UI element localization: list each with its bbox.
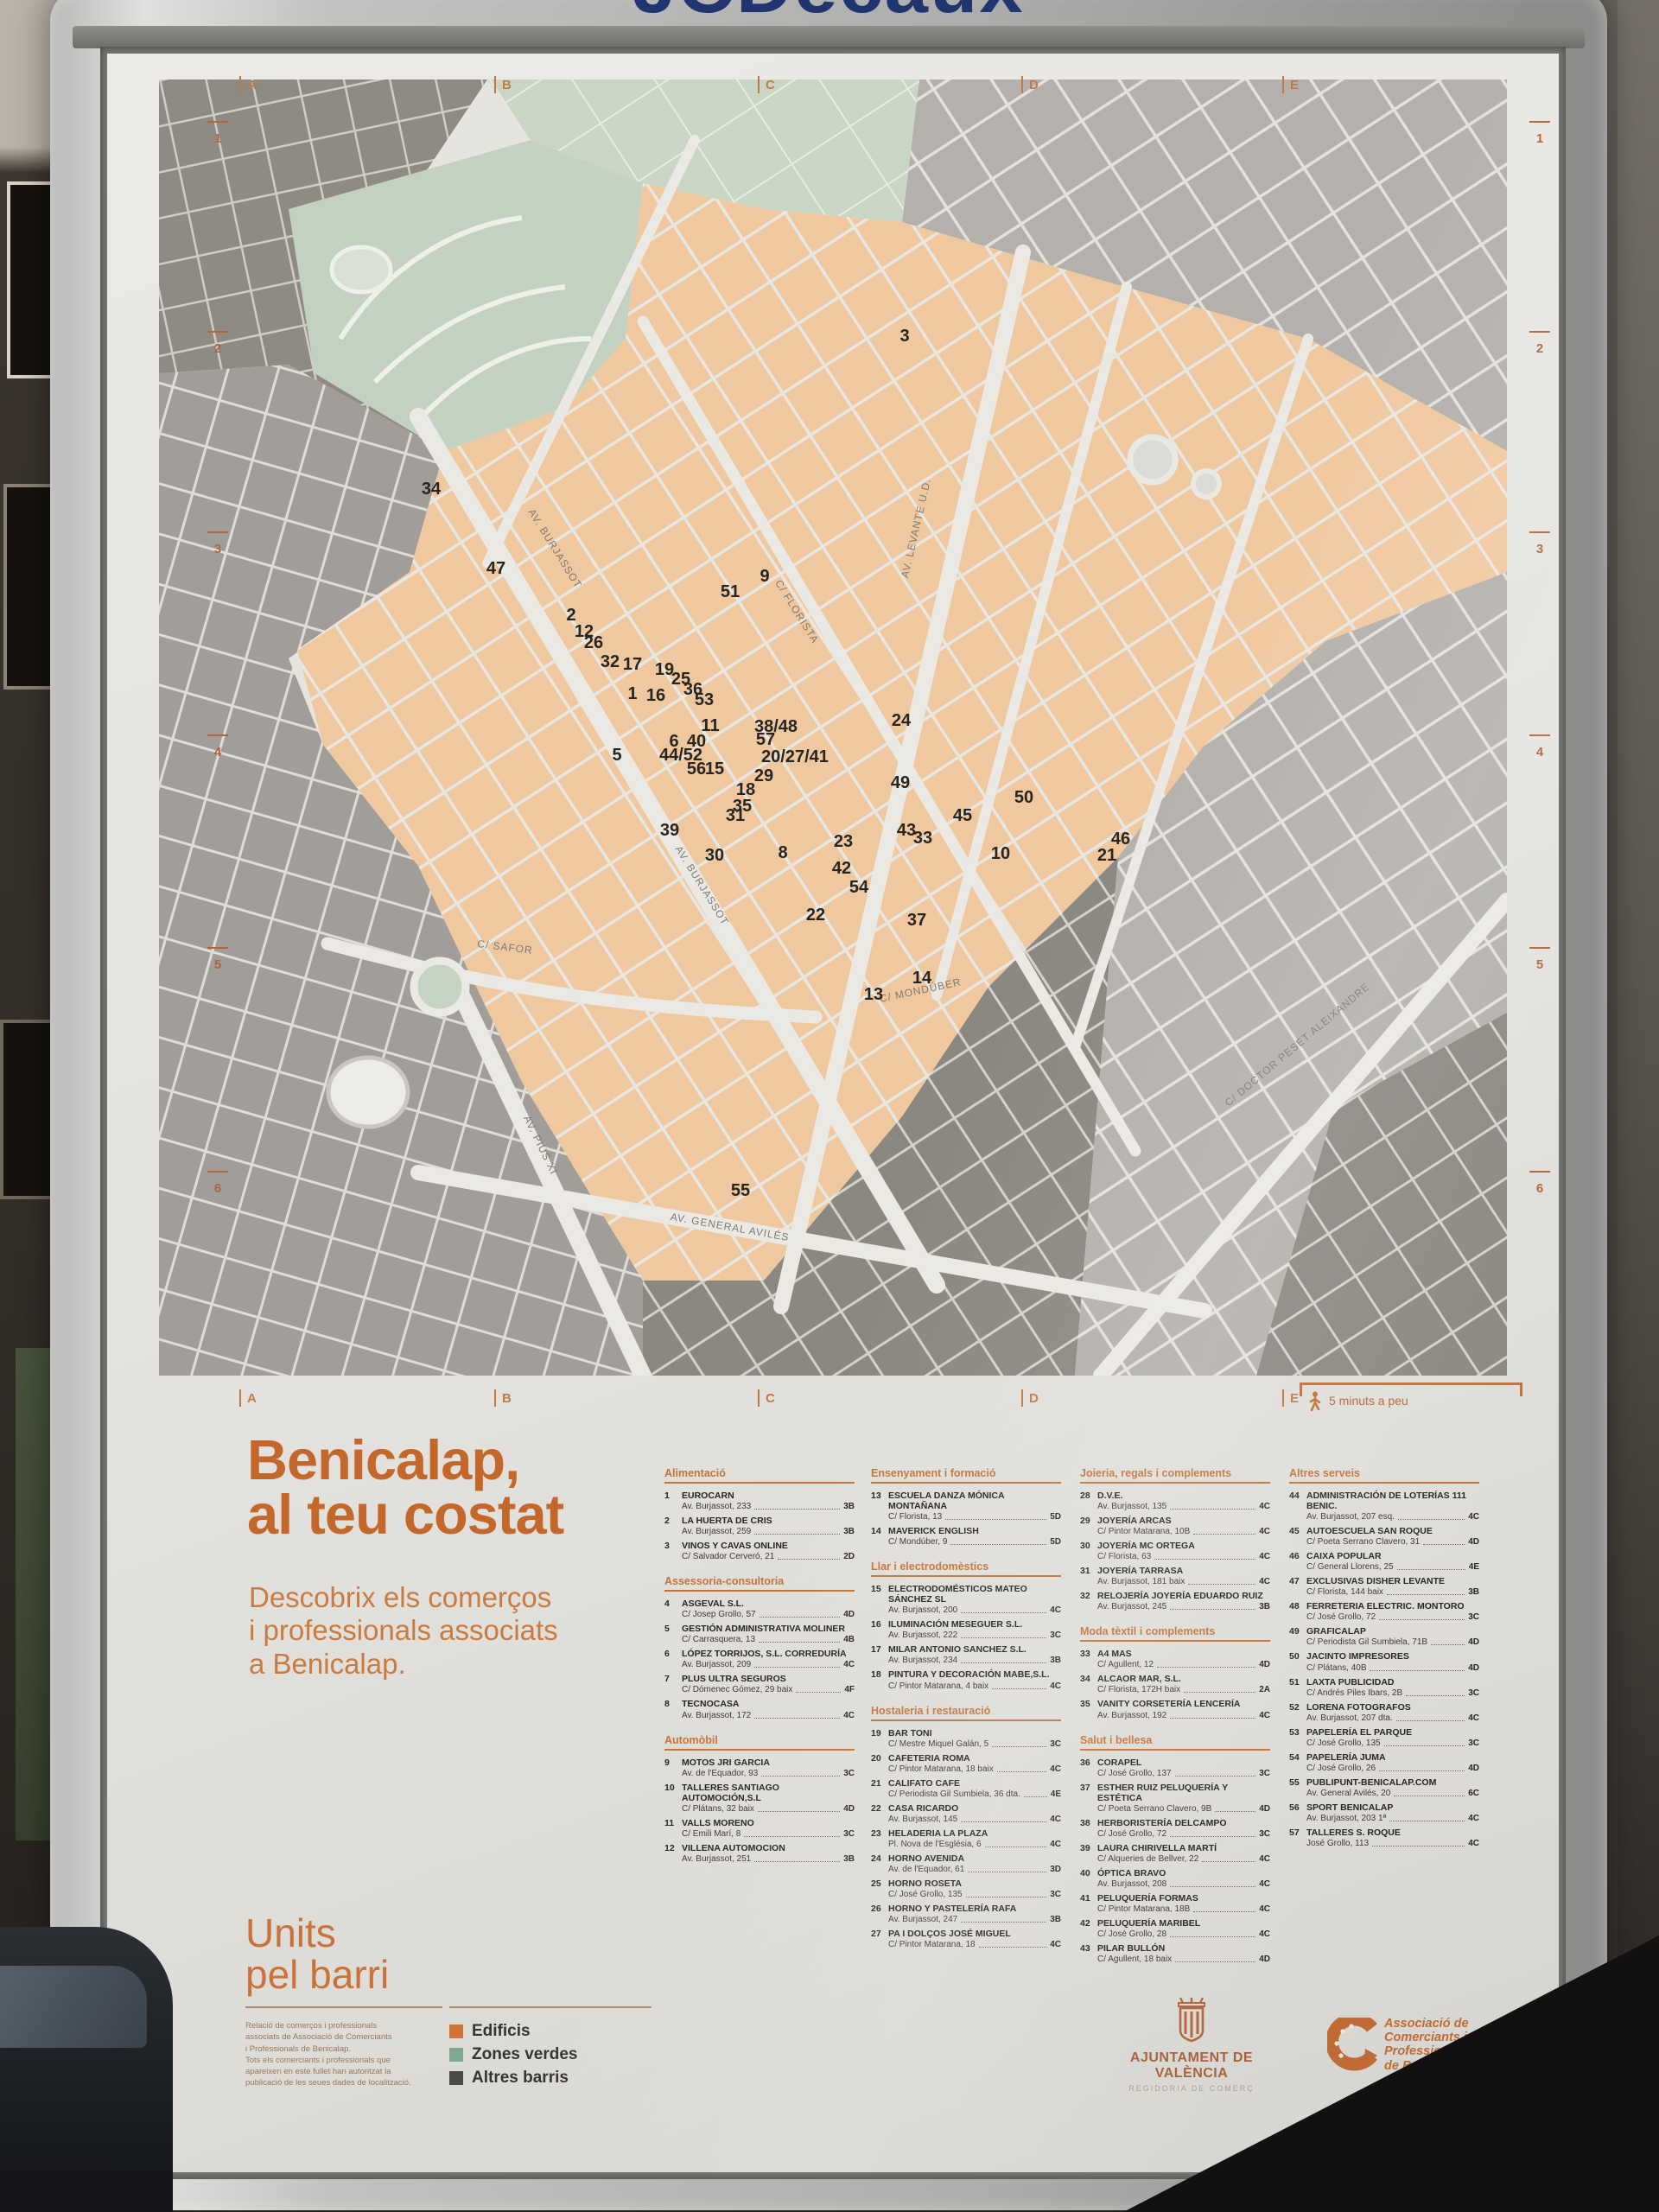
dotted-leader bbox=[961, 1637, 1046, 1638]
directory-item: 8TECNOCASAAv. Burjassot, 1724C bbox=[664, 1699, 855, 1720]
item-number: 11 bbox=[664, 1818, 682, 1840]
item-number: 55 bbox=[1289, 1777, 1306, 1799]
item-address: C/ José Grollo, 135 bbox=[888, 1889, 963, 1900]
item-address: Av. Burjassot, 135 bbox=[1097, 1501, 1166, 1512]
map-marker: 13 bbox=[864, 985, 883, 1004]
item-name: EUROCARN bbox=[682, 1491, 855, 1501]
dotted-leader bbox=[759, 1642, 840, 1643]
directory-item: 36CORAPELC/ José Grollo, 1373C bbox=[1080, 1758, 1270, 1779]
item-name: EXCLUSIVAS DISHER LEVANTE bbox=[1306, 1576, 1479, 1586]
item-grid-ref: 4C bbox=[1468, 1713, 1479, 1724]
item-grid-ref: 4B bbox=[843, 1634, 855, 1645]
directory-section: Moda tèxtil i complements33A4 MASC/ Agul… bbox=[1080, 1625, 1270, 1720]
directory-item: 45AUTOESCUELA SAN ROQUEC/ Poeta Serrano … bbox=[1289, 1526, 1479, 1548]
item-number: 16 bbox=[871, 1619, 888, 1641]
frame-top-bar bbox=[73, 26, 1585, 48]
dotted-leader bbox=[1170, 1509, 1255, 1510]
item-number: 40 bbox=[1080, 1868, 1097, 1890]
item-grid-ref: 3B bbox=[843, 1853, 855, 1865]
directory-item: 42PELUQUERÍA MARIBELC/ José Grollo, 284C bbox=[1080, 1918, 1270, 1940]
dotted-leader bbox=[961, 1612, 1046, 1613]
item-grid-ref: 5D bbox=[1050, 1536, 1061, 1548]
dotted-leader bbox=[1379, 1619, 1465, 1620]
grid-number: 4 bbox=[209, 745, 226, 760]
item-name: JOYERÍA TARRASA bbox=[1097, 1566, 1270, 1576]
map-marker: 30 bbox=[705, 846, 724, 865]
item-grid-ref: 4D bbox=[1468, 1662, 1479, 1674]
item-address: C/ Pintor Matarana, 4 baix bbox=[888, 1681, 988, 1692]
dotted-leader bbox=[778, 1559, 840, 1560]
item-grid-ref: 4C bbox=[1259, 1501, 1270, 1512]
item-grid-ref: 3C bbox=[1050, 1738, 1061, 1750]
item-grid-ref: 3C bbox=[1468, 1738, 1479, 1749]
directory-item: 22CASA RICARDOAv. Burjassot, 1454C bbox=[871, 1803, 1061, 1825]
dotted-leader bbox=[1175, 1776, 1256, 1777]
directory-item: 9MOTOS JRI GARCIAAv. de l'Equador, 933C bbox=[664, 1758, 855, 1779]
item-grid-ref: 4C bbox=[1050, 1605, 1061, 1616]
item-number: 22 bbox=[871, 1803, 888, 1825]
map-marker: 15 bbox=[705, 760, 724, 779]
item-name: PELUQUERÍA FORMAS bbox=[1097, 1893, 1270, 1904]
legend-row: Altres barris bbox=[449, 2069, 578, 2088]
ajuntament-valencia-logo: AJUNTAMENT DE VALÈNCIA REGIDORIA DE COME… bbox=[1101, 1998, 1282, 2093]
map-marker: 42 bbox=[832, 859, 851, 878]
grid-number: 3 bbox=[209, 542, 226, 556]
directory-item: 19BAR TONIC/ Mestre Miquel Galán, 53C bbox=[871, 1728, 1061, 1750]
dotted-leader bbox=[1406, 1695, 1465, 1696]
legend-row: Zones verdes bbox=[449, 2045, 578, 2064]
walking-scale: 5 minuts a peu bbox=[1300, 1382, 1522, 1427]
item-number: 42 bbox=[1080, 1918, 1097, 1940]
item-number: 46 bbox=[1289, 1551, 1306, 1573]
item-address: C/ Salvador Cerveró, 21 bbox=[682, 1551, 774, 1562]
dotted-leader bbox=[760, 1617, 841, 1618]
item-address: Av. Burjassot, 207 esq. bbox=[1306, 1511, 1395, 1522]
map-marker: 3 bbox=[899, 327, 909, 346]
map-marker: 56 bbox=[687, 760, 706, 779]
item-grid-ref: 3B bbox=[1259, 1601, 1270, 1612]
directory-item: 50JACINTO IMPRESORESC/ Plátans, 40B4D bbox=[1289, 1651, 1479, 1673]
grid-letter: C bbox=[766, 78, 775, 92]
poster-title: Benicalap,al teu costat bbox=[247, 1433, 645, 1541]
item-grid-ref: 4C bbox=[1050, 1839, 1061, 1850]
dotted-leader bbox=[997, 1771, 1046, 1772]
item-grid-ref: 4C bbox=[1259, 1878, 1270, 1890]
item-address: C/ Emili Marí, 8 bbox=[682, 1828, 741, 1840]
item-address: C/ Poeta Serrano Clavero, 31 bbox=[1306, 1536, 1420, 1548]
item-number: 6 bbox=[664, 1649, 682, 1670]
map-legend: EdificisZones verdesAltres barris bbox=[449, 2022, 578, 2092]
item-number: 48 bbox=[1289, 1601, 1306, 1623]
grid-letter: B bbox=[502, 78, 512, 92]
assoc-arrow-icon bbox=[1327, 2018, 1377, 2071]
item-grid-ref: 3B bbox=[843, 1501, 855, 1512]
dotted-leader bbox=[979, 1947, 1047, 1948]
dotted-leader bbox=[754, 1534, 840, 1535]
item-grid-ref: 4D bbox=[1468, 1536, 1479, 1548]
directory-item: 33A4 MASC/ Agullent, 124D bbox=[1080, 1649, 1270, 1670]
map-marker: 14 bbox=[912, 969, 932, 988]
item-name: FERRETERIA ELECTRIC. MONTORO bbox=[1306, 1601, 1479, 1611]
item-grid-ref: 5D bbox=[1050, 1511, 1061, 1522]
item-name: GRAFICALAP bbox=[1306, 1626, 1479, 1637]
item-name: RELOJERÍA JOYERÍA EDUARDO RUIZ bbox=[1097, 1591, 1270, 1601]
dotted-leader bbox=[1423, 1544, 1465, 1545]
item-number: 2 bbox=[664, 1516, 682, 1537]
item-grid-ref: 3C bbox=[1259, 1768, 1270, 1779]
item-name: JACINTO IMPRESORES bbox=[1306, 1651, 1479, 1662]
item-grid-ref: 3C bbox=[843, 1828, 855, 1840]
directory-item: 20CAFETERIA ROMAC/ Pintor Matarana, 18 b… bbox=[871, 1753, 1061, 1775]
directory-item: 6LÓPEZ TORRIJOS, S.L. CORREDURÍAAv. Burj… bbox=[664, 1649, 855, 1670]
roundabout-west bbox=[414, 961, 466, 1013]
item-address: Av. Burjassot, 203 1ª bbox=[1306, 1813, 1386, 1824]
background-edge bbox=[1618, 0, 1659, 2212]
directory-item: 29JOYERÍA ARCASC/ Pintor Matarana, 10B4C bbox=[1080, 1516, 1270, 1537]
item-address: C/ Periodista Gil Sumbiela, 71B bbox=[1306, 1637, 1427, 1648]
map-graphic: AV. BURJASSOTAV. BURJASSOTC/ FLORISTAAV.… bbox=[159, 79, 1507, 1376]
dotted-leader bbox=[758, 1811, 840, 1812]
dotted-leader bbox=[950, 1544, 1046, 1545]
directory-item: 28D.V.E.Av. Burjassot, 1354C bbox=[1080, 1491, 1270, 1512]
directory-section: Automòbil9MOTOS JRI GARCIAAv. de l'Equad… bbox=[664, 1734, 855, 1865]
item-name: CALIFATO CAFE bbox=[888, 1778, 1061, 1789]
item-number: 14 bbox=[871, 1526, 888, 1548]
item-number: 39 bbox=[1080, 1843, 1097, 1865]
item-name: CASA RICARDO bbox=[888, 1803, 1061, 1814]
item-grid-ref: 3B bbox=[843, 1526, 855, 1537]
dotted-leader bbox=[1215, 1811, 1255, 1812]
item-address: C/ Florista, 144 baix bbox=[1306, 1586, 1383, 1598]
item-number: 26 bbox=[871, 1904, 888, 1925]
map-marker: 16 bbox=[646, 686, 665, 705]
item-name: MOTOS JRI GARCIA bbox=[682, 1758, 855, 1768]
map-marker: 22 bbox=[806, 906, 825, 925]
item-name: PA I DOLÇOS JOSÉ MIGUEL bbox=[888, 1929, 1061, 1939]
item-grid-ref: 4C bbox=[1050, 1814, 1061, 1825]
grid-number: 5 bbox=[1531, 957, 1548, 972]
map-marker: 53 bbox=[695, 690, 714, 709]
map-marker: 33 bbox=[913, 829, 932, 848]
item-grid-ref: 4C bbox=[1259, 1710, 1270, 1721]
legend-row: Edificis bbox=[449, 2022, 578, 2041]
item-number: 56 bbox=[1289, 1802, 1306, 1824]
benicalap-map-poster: AV. BURJASSOTAV. BURJASSOTC/ FLORISTAAV.… bbox=[107, 54, 1559, 2172]
grid-number: 6 bbox=[209, 1181, 226, 1196]
dotted-leader bbox=[1202, 1861, 1255, 1862]
dotted-leader bbox=[761, 1776, 840, 1777]
units-pel-barri-title: Units pel barri bbox=[245, 1913, 389, 1996]
directory-item: 47EXCLUSIVAS DISHER LEVANTEC/ Florista, … bbox=[1289, 1576, 1479, 1598]
item-number: 7 bbox=[664, 1674, 682, 1695]
dotted-leader bbox=[1024, 1796, 1047, 1797]
grid-number: 4 bbox=[1531, 745, 1548, 760]
item-name: ÓPTICA BRAVO bbox=[1097, 1868, 1270, 1878]
stadium bbox=[328, 1058, 408, 1127]
panel-brand-area: JCDecaux bbox=[85, 0, 1573, 26]
item-grid-ref: 4D bbox=[1468, 1637, 1479, 1648]
item-number: 52 bbox=[1289, 1702, 1306, 1724]
item-address: C/ Alqueries de Bellver, 22 bbox=[1097, 1853, 1198, 1865]
ajuntament-name: AJUNTAMENT DE VALÈNCIA bbox=[1101, 2050, 1282, 2082]
directory-section-title: Ensenyament i formació bbox=[871, 1467, 1061, 1484]
divider bbox=[449, 2006, 652, 2008]
item-address: Av. Burjassot, 233 bbox=[682, 1501, 751, 1512]
item-name: PELUQUERÍA MARIBEL bbox=[1097, 1918, 1270, 1929]
item-name: LORENA FOTOGRAFOS bbox=[1306, 1702, 1479, 1713]
directory-section-title: Llar i electrodomèstics bbox=[871, 1560, 1061, 1577]
item-number: 1 bbox=[664, 1491, 682, 1512]
item-number: 34 bbox=[1080, 1674, 1097, 1695]
item-grid-ref: 3C bbox=[1468, 1611, 1479, 1623]
item-name: LAXTA PUBLICIDAD bbox=[1306, 1677, 1479, 1688]
directory-item: 37ESTHER RUIZ PELUQUERÍA Y ESTÉTICAC/ Po… bbox=[1080, 1783, 1270, 1815]
map-marker: 39 bbox=[660, 821, 679, 840]
directory-section: Altres serveis44ADMINISTRACIÓN DE LOTERÍ… bbox=[1289, 1467, 1479, 1849]
item-name: PAPELERÍA JUMA bbox=[1306, 1752, 1479, 1763]
item-grid-ref: 4E bbox=[1469, 1561, 1479, 1573]
directory-item: 1EUROCARNAv. Burjassot, 2333B bbox=[664, 1491, 855, 1512]
item-grid-ref: 4D bbox=[1259, 1803, 1270, 1815]
grid-letter: D bbox=[1029, 78, 1039, 92]
item-grid-ref: 6C bbox=[1468, 1788, 1479, 1799]
item-grid-ref: 3C bbox=[1050, 1889, 1061, 1900]
dotted-leader bbox=[945, 1519, 1046, 1520]
item-number: 4 bbox=[664, 1599, 682, 1620]
item-name: ELECTRODOMÉSTICOS MATEO SÁNCHEZ SL bbox=[888, 1584, 1061, 1605]
item-number: 57 bbox=[1289, 1827, 1306, 1849]
map-marker: 34 bbox=[422, 480, 442, 499]
directory-section-title: Automòbil bbox=[664, 1734, 855, 1751]
directory-item: 44ADMINISTRACIÓN DE LOTERÍAS 111 BENIC.A… bbox=[1289, 1491, 1479, 1522]
directory-item: 4ASGEVAL S.L.C/ Josep Grollo, 574D bbox=[664, 1599, 855, 1620]
item-number: 50 bbox=[1289, 1651, 1306, 1673]
item-address: Av. de l'Equador, 93 bbox=[682, 1768, 758, 1779]
directory-item: 16ILUMINACIÓN MESEGUER S.L.Av. Burjassot… bbox=[871, 1619, 1061, 1641]
map-marker: 9 bbox=[760, 567, 769, 586]
item-grid-ref: 4C bbox=[1259, 1929, 1270, 1940]
item-number: 23 bbox=[871, 1828, 888, 1850]
item-address: C/ José Grollo, 72 bbox=[1306, 1611, 1376, 1623]
item-name: A4 MAS bbox=[1097, 1649, 1270, 1659]
item-name: HORNO Y PASTELERÍA RAFA bbox=[888, 1904, 1061, 1914]
parked-car bbox=[0, 1927, 173, 2212]
legend-label: Edificis bbox=[472, 2022, 531, 2041]
dotted-leader bbox=[754, 1509, 840, 1510]
directory-item: 10TALLERES SANTIAGO AUTOMOCIÓN,S.LC/ Plá… bbox=[664, 1783, 855, 1815]
item-address: C/ Plátans, 40B bbox=[1306, 1662, 1366, 1674]
item-address: Av. Burjassot, 172 bbox=[682, 1710, 751, 1721]
item-address: C/ Josep Grollo, 57 bbox=[682, 1609, 756, 1620]
dotted-leader bbox=[1379, 1770, 1465, 1771]
pedestrian-icon bbox=[1308, 1391, 1322, 1412]
directory-section: Hostaleria i restauració19BAR TONIC/ Mes… bbox=[871, 1705, 1061, 1951]
item-address: C/ Carrasquera, 13 bbox=[682, 1634, 755, 1645]
item-number: 13 bbox=[871, 1491, 888, 1522]
directory-item: 23HELADERIA LA PLAZAPl. Nova de l'Esglés… bbox=[871, 1828, 1061, 1850]
item-grid-ref: 4C bbox=[1468, 1511, 1479, 1522]
map-marker: 47 bbox=[486, 559, 505, 578]
item-number: 44 bbox=[1289, 1491, 1306, 1522]
dotted-leader bbox=[1193, 1911, 1255, 1912]
item-grid-ref: 3D bbox=[1050, 1864, 1061, 1875]
item-number: 8 bbox=[664, 1699, 682, 1720]
item-grid-ref: 4C bbox=[1259, 1551, 1270, 1562]
item-name: VILLENA AUTOMOCION bbox=[682, 1843, 855, 1853]
dotted-leader bbox=[1396, 1720, 1465, 1721]
item-number: 37 bbox=[1080, 1783, 1097, 1815]
directory-item: 27PA I DOLÇOS JOSÉ MIGUELC/ Pintor Matar… bbox=[871, 1929, 1061, 1950]
item-address: C/ Dómenec Gómez, 29 baix bbox=[682, 1684, 792, 1695]
grid-number: 6 bbox=[1531, 1181, 1548, 1196]
item-name: D.V.E. bbox=[1097, 1491, 1270, 1501]
map-marker: 17 bbox=[623, 655, 642, 674]
item-number: 18 bbox=[871, 1669, 888, 1691]
directory-item: 21CALIFATO CAFEC/ Periodista Gil Sumbiel… bbox=[871, 1778, 1061, 1800]
dotted-leader bbox=[796, 1692, 841, 1693]
item-grid-ref: 3C bbox=[1050, 1630, 1061, 1641]
directory-section: Llar i electrodomèstics15ELECTRODOMÉSTIC… bbox=[871, 1560, 1061, 1691]
map-marker: 37 bbox=[907, 911, 926, 930]
item-name: MILAR ANTONIO SANCHEZ S.L. bbox=[888, 1644, 1061, 1655]
grid-letter: D bbox=[1029, 1391, 1039, 1406]
directory-section: Joieria, regals i complements28D.V.E.Av.… bbox=[1080, 1467, 1270, 1612]
map-marker: 8 bbox=[778, 843, 787, 862]
item-grid-ref: 4C bbox=[1468, 1838, 1479, 1849]
roundabout-northeast-small bbox=[1193, 471, 1219, 497]
park-pond bbox=[332, 247, 391, 292]
item-number: 28 bbox=[1080, 1491, 1097, 1512]
item-number: 25 bbox=[871, 1878, 888, 1900]
directory-item: 55PUBLIPUNT-BENICALAP.COMAv. General Avi… bbox=[1289, 1777, 1479, 1799]
item-grid-ref: 4D bbox=[843, 1803, 855, 1815]
roundabout-northeast bbox=[1130, 437, 1175, 482]
dotted-leader bbox=[744, 1836, 840, 1837]
item-grid-ref: 4E bbox=[1051, 1789, 1061, 1800]
item-grid-ref: 3B bbox=[1468, 1586, 1479, 1598]
directory-column-2: Ensenyament i formació13ESCUELA DANZA MÓ… bbox=[871, 1467, 1061, 1954]
dotted-leader bbox=[1154, 1559, 1255, 1560]
item-number: 35 bbox=[1080, 1699, 1097, 1720]
item-address: C/ General Llorens, 25 bbox=[1306, 1561, 1394, 1573]
item-address: Av. Burjassot, 259 bbox=[682, 1526, 751, 1537]
directory-item: 32RELOJERÍA JOYERÍA EDUARDO RUIZAv. Burj… bbox=[1080, 1591, 1270, 1612]
map-marker: 20/27/41 bbox=[761, 747, 829, 766]
directory-item: 14MAVERICK ENGLISHC/ Mondúber, 95D bbox=[871, 1526, 1061, 1548]
item-address: Pl. Nova de l'Església, 6 bbox=[888, 1839, 982, 1850]
item-address: C/ José Grollo, 135 bbox=[1306, 1738, 1381, 1749]
item-name: TECNOCASA bbox=[682, 1699, 855, 1709]
item-address: Av. Burjassot, 200 bbox=[888, 1605, 957, 1616]
dotted-leader bbox=[1370, 1670, 1465, 1671]
directory-item: 17MILAR ANTONIO SANCHEZ S.L.Av. Burjasso… bbox=[871, 1644, 1061, 1666]
item-grid-ref: 4C bbox=[1050, 1681, 1061, 1692]
item-address: C/ Andrés Piles Ibars, 2B bbox=[1306, 1688, 1402, 1699]
item-name: LAURA CHIRIVELLA MARTÍ bbox=[1097, 1843, 1270, 1853]
jcdecaux-panel-frame: JCDecaux bbox=[50, 0, 1607, 2210]
directory-item: 5GESTIÓN ADMINISTRATIVA MOLINERC/ Carras… bbox=[664, 1624, 855, 1645]
dotted-leader bbox=[1397, 1569, 1465, 1570]
item-name: TALLERES S. ROQUE bbox=[1306, 1827, 1479, 1838]
item-address: Av. Burjassot, 247 bbox=[888, 1914, 957, 1925]
grid-number: 2 bbox=[209, 341, 226, 356]
item-address: C/ Pintor Matarana, 18 baix bbox=[888, 1764, 994, 1775]
directory-item: 35VANITY CORSETERÍA LENCERÍAAv. Burjasso… bbox=[1080, 1699, 1270, 1720]
item-grid-ref: 2A bbox=[1259, 1684, 1270, 1695]
item-name: PILAR BULLÓN bbox=[1097, 1943, 1270, 1954]
grid-number: 3 bbox=[1531, 542, 1548, 556]
item-number: 17 bbox=[871, 1644, 888, 1666]
item-grid-ref: 4C bbox=[1050, 1939, 1061, 1950]
neighborhood-map: AV. BURJASSOTAV. BURJASSOTC/ FLORISTAAV.… bbox=[159, 79, 1507, 1376]
item-name: JOYERÍA ARCAS bbox=[1097, 1516, 1270, 1526]
car-window bbox=[0, 1966, 147, 2048]
directory-item: 34ALCAOR MAR, S.L.C/ Florista, 172H baix… bbox=[1080, 1674, 1270, 1695]
item-name: CAIXA POPULAR bbox=[1306, 1551, 1479, 1561]
legend-swatch bbox=[449, 2071, 463, 2085]
dotted-leader bbox=[754, 1861, 840, 1862]
map-marker: 31 bbox=[726, 806, 745, 825]
directory-column-1: Alimentació1EUROCARNAv. Burjassot, 2333B… bbox=[664, 1467, 855, 1868]
item-address: C/ Pintor Matarana, 18B bbox=[1097, 1904, 1190, 1915]
dotted-leader bbox=[754, 1667, 840, 1668]
item-grid-ref: 4C bbox=[1468, 1813, 1479, 1824]
item-grid-ref: 3B bbox=[1050, 1914, 1061, 1925]
directory-section: Ensenyament i formació13ESCUELA DANZA MÓ… bbox=[871, 1467, 1061, 1548]
grid-letter: B bbox=[502, 1391, 512, 1406]
map-marker: 45 bbox=[953, 806, 972, 825]
item-name: CAFETERIA ROMA bbox=[888, 1753, 1061, 1764]
item-name: ILUMINACIÓN MESEGUER S.L. bbox=[888, 1619, 1061, 1630]
directory-item: 52LORENA FOTOGRAFOSAv. Burjassot, 207 dt… bbox=[1289, 1702, 1479, 1724]
dotted-leader bbox=[966, 1897, 1047, 1897]
dotted-leader bbox=[1170, 1936, 1255, 1937]
item-number: 21 bbox=[871, 1778, 888, 1800]
legal-smallprint: Relació de comerços i professionals asso… bbox=[245, 2020, 448, 2089]
grid-number: 2 bbox=[1531, 341, 1548, 356]
item-address: Av. Burjassot, 181 baix bbox=[1097, 1576, 1185, 1587]
item-name: PLUS ULTRA SEGUROS bbox=[682, 1674, 855, 1684]
item-address: C/ Periodista Gil Sumbiela, 36 dta. bbox=[888, 1789, 1020, 1800]
directory-item: 2LA HUERTA DE CRISAv. Burjassot, 2593B bbox=[664, 1516, 855, 1537]
item-grid-ref: 4C bbox=[1259, 1576, 1270, 1587]
directory-item: 15ELECTRODOMÉSTICOS MATEO SÁNCHEZ SLAv. … bbox=[871, 1584, 1061, 1616]
directory-item: 38HERBORISTERÍA DELCAMPOC/ José Grollo, … bbox=[1080, 1818, 1270, 1840]
dotted-leader bbox=[1384, 1745, 1465, 1746]
item-name: LÓPEZ TORRIJOS, S.L. CORREDURÍA bbox=[682, 1649, 855, 1659]
item-address: C/ Florista, 63 bbox=[1097, 1551, 1151, 1562]
grid-letter: A bbox=[247, 1391, 257, 1406]
map-marker: 55 bbox=[731, 1181, 750, 1200]
dotted-leader bbox=[1175, 1961, 1255, 1962]
grid-number: 1 bbox=[209, 131, 226, 146]
dotted-leader bbox=[961, 1922, 1046, 1923]
item-number: 19 bbox=[871, 1728, 888, 1750]
grid-number: 1 bbox=[1531, 131, 1548, 146]
grid-letter: E bbox=[1290, 1391, 1299, 1406]
item-number: 47 bbox=[1289, 1576, 1306, 1598]
dotted-leader bbox=[1170, 1836, 1255, 1837]
item-address: C/ Florista, 13 bbox=[888, 1511, 942, 1522]
directory-section-title: Alimentació bbox=[664, 1467, 855, 1484]
directory-item: 12VILLENA AUTOMOCIONAv. Burjassot, 2513B bbox=[664, 1843, 855, 1865]
item-grid-ref: 4D bbox=[1259, 1659, 1270, 1670]
dotted-leader bbox=[992, 1746, 1046, 1747]
item-name: GESTIÓN ADMINISTRATIVA MOLINER bbox=[682, 1624, 855, 1634]
item-number: 29 bbox=[1080, 1516, 1097, 1537]
item-grid-ref: 3B bbox=[1050, 1655, 1061, 1666]
item-number: 32 bbox=[1080, 1591, 1097, 1612]
